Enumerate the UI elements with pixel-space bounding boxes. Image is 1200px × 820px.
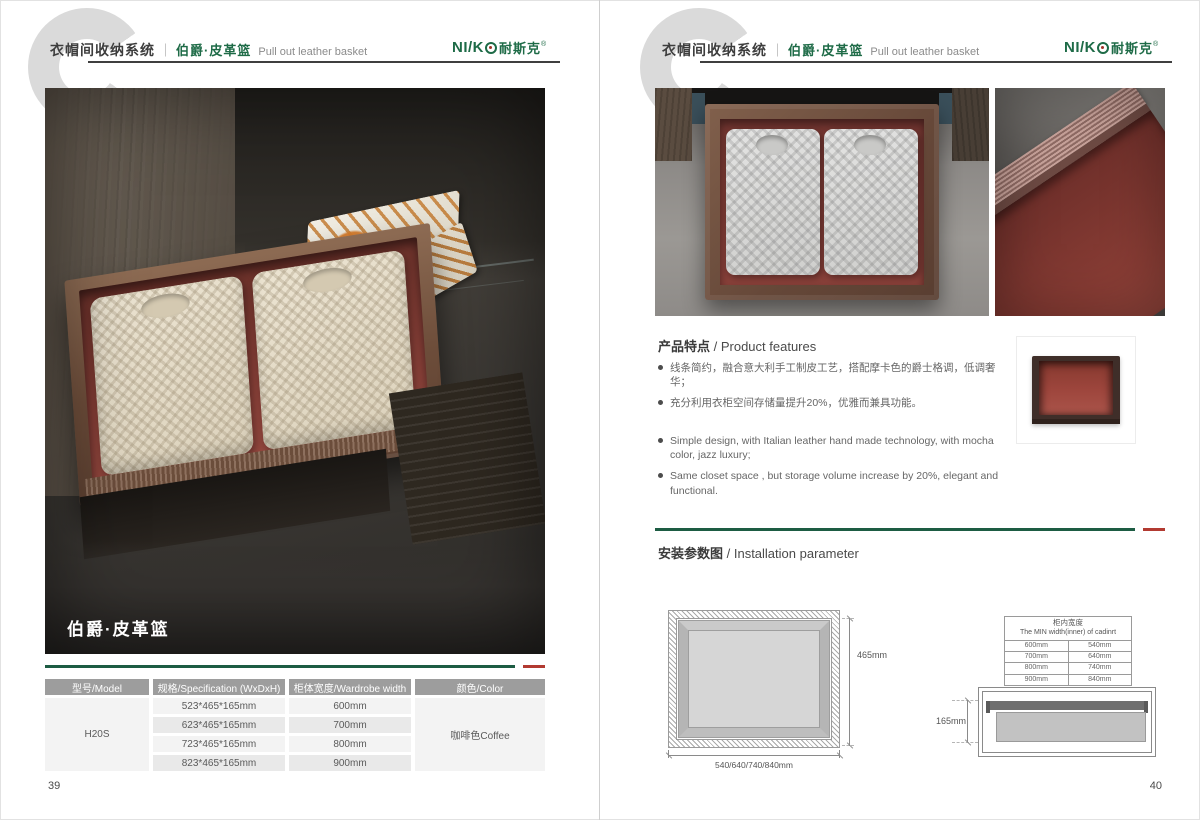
spec-cell: 623*465*165mm (153, 717, 285, 733)
bullet-icon (658, 438, 663, 443)
cabinet-width: 800mm (1005, 663, 1069, 673)
wood-panel-left (655, 88, 692, 161)
installation-title: 安装参数图 / Installation parameter (658, 543, 859, 562)
header-subtitle-cn: 伯爵·皮革篮 (788, 43, 863, 58)
nisko-logo: NI/K 耐斯克 ® (452, 38, 546, 57)
model-cell: H20S (45, 698, 149, 771)
dim-line-width (668, 755, 840, 756)
spec-cell: 823*465*165mm (153, 755, 285, 771)
sweater-left (726, 129, 820, 275)
cabinet-width: 600mm (1005, 641, 1069, 651)
header-subtitle-cn: 伯爵·皮革篮 (176, 43, 251, 58)
logo-o-icon (1097, 42, 1109, 54)
photo-vignette (995, 88, 1165, 316)
feature-text: Same closet space , but storage volume i… (670, 469, 1003, 497)
header-separator: ｜ (159, 43, 172, 58)
bullet-icon (658, 400, 663, 405)
inner-width: 540mm (1069, 641, 1132, 651)
slide-rail-left (692, 93, 705, 125)
min-width-title-en: The MIN width(inner) of cadinrt (1005, 628, 1131, 637)
spec-cell: 523*465*165mm (153, 698, 285, 714)
min-width-title-cn: 柜内宽度 (1005, 618, 1131, 628)
divider-green-bar (45, 665, 515, 668)
photo-vignette (45, 88, 545, 654)
diagram-cabinet-inner (676, 618, 832, 740)
installation-title-en: / Installation parameter (723, 546, 859, 561)
logo-cn-text: 耐斯克 (499, 38, 541, 57)
section-divider (45, 665, 545, 668)
logo-o-icon (485, 42, 497, 54)
corner-detail-photo (995, 88, 1165, 316)
cabinet-width: 900mm (1005, 675, 1069, 685)
divider-green-bar (655, 528, 1135, 531)
min-width-table: 柜内宽度 The MIN width(inner) of cadinrt 600… (1004, 616, 1132, 686)
features-title-en: / Product features (710, 339, 816, 354)
top-view-photo (655, 88, 989, 316)
header-title-cn: 衣帽间收纳系统 (662, 42, 767, 58)
logo-latin-text: NI/K (452, 39, 484, 56)
feature-item: Same closet space , but storage volume i… (658, 469, 1003, 497)
basket-inset-image (1016, 336, 1136, 444)
feature-text: Simple design, with Italian leather hand… (670, 434, 1003, 462)
color-cell: 咖啡色Coffee (415, 698, 545, 771)
header-title-cn: 衣帽间收纳系统 (50, 42, 155, 58)
spec-header-specification: 规格/Specification (WxDxH) (153, 679, 285, 695)
inner-width: 740mm (1069, 663, 1132, 673)
catalog-spread: 衣帽间收纳系统｜伯爵·皮革篮Pull out leather basket NI… (0, 0, 1200, 820)
diagram-basket (679, 621, 829, 737)
width-cell: 800mm (289, 736, 411, 752)
spec-table: 型号/Model 规格/Specification (WxDxH) 柜体宽度/W… (45, 679, 545, 771)
section-divider (655, 528, 1165, 531)
min-width-row: 800mm 740mm (1005, 663, 1131, 674)
drawer-body (996, 712, 1146, 742)
min-width-row: 700mm 640mm (1005, 652, 1131, 663)
header-rule (700, 61, 1172, 63)
feature-item: 充分利用衣柜空间存储量提升20%，优雅而兼具功能。 (658, 396, 1003, 410)
sweater-right (824, 129, 918, 275)
feature-item: Simple design, with Italian leather hand… (658, 434, 1003, 462)
page-header: 衣帽间收纳系统｜伯爵·皮革篮Pull out leather basket (662, 40, 979, 60)
spec-header-model: 型号/Model (45, 679, 149, 695)
dim-label-widths: 540/640/740/840mm (668, 760, 840, 770)
feature-text: 线条简约，融合意大利手工制皮工艺，搭配摩卡色的爵士格调，低调奢华； (670, 361, 1003, 389)
nisko-logo: NI/K 耐斯克 ® (1064, 38, 1158, 57)
features-bullets-cn: 线条简约，融合意大利手工制皮工艺，搭配摩卡色的爵士格调，低调奢华； 充分利用衣柜… (658, 361, 1003, 418)
min-width-row: 900mm 840mm (1005, 675, 1131, 685)
width-cell: 600mm (289, 698, 411, 714)
spec-cell: 723*465*165mm (153, 736, 285, 752)
slide-rail-right (939, 93, 952, 125)
inset-basket-lip (1032, 419, 1120, 424)
divider-red-bar (1143, 528, 1165, 531)
features-title: 产品特点 / Product features (658, 336, 816, 355)
width-cell: 700mm (289, 717, 411, 733)
photo-caption: 伯爵·皮革篮 (67, 615, 170, 640)
inset-basket-frame (1032, 356, 1120, 424)
features-title-cn: 产品特点 (658, 339, 710, 354)
cabinet-width: 700mm (1005, 652, 1069, 662)
leather-interior (720, 119, 924, 285)
top-view-diagram (668, 610, 840, 748)
divider-red-bar (523, 665, 545, 668)
logo-o-dot (1101, 46, 1104, 49)
page-header: 衣帽间收纳系统｜伯爵·皮革篮Pull out leather basket (50, 40, 367, 60)
installation-title-cn: 安装参数图 (658, 546, 723, 561)
extension-line (952, 742, 978, 743)
inner-width: 840mm (1069, 675, 1132, 685)
bullet-icon (658, 365, 663, 370)
min-width-table-header: 柜内宽度 The MIN width(inner) of cadinrt (1005, 617, 1131, 641)
dim-label-465: 465mm (857, 650, 887, 660)
page-number-39: 39 (48, 780, 60, 792)
header-rule (88, 61, 560, 63)
header-separator: ｜ (771, 43, 784, 58)
feature-item: 线条简约，融合意大利手工制皮工艺，搭配摩卡色的爵士格调，低调奢华； (658, 361, 1003, 389)
wood-panel-right (952, 88, 989, 161)
logo-cn-text: 耐斯克 (1111, 38, 1153, 57)
header-subtitle-en: Pull out leather basket (870, 46, 979, 58)
width-cell: 900mm (289, 755, 411, 771)
dim-line-height (849, 618, 850, 746)
features-bullets-en: Simple design, with Italian leather hand… (658, 434, 1003, 505)
spec-header-wardrobe-width: 柜体宽度/Wardrobe width (289, 679, 411, 695)
registered-mark: ® (1153, 41, 1158, 48)
dim-label-165: 165mm (936, 716, 966, 726)
bullet-icon (658, 473, 663, 478)
page-number-40: 40 (1138, 780, 1162, 792)
page-gutter-line (599, 0, 600, 820)
min-width-row: 600mm 540mm (1005, 641, 1131, 652)
side-view-diagram (978, 687, 1156, 757)
drawer-rail (986, 701, 1148, 710)
extension-line (952, 700, 978, 701)
header-subtitle-en: Pull out leather basket (258, 46, 367, 58)
spec-header-color: 颜色/Color (415, 679, 545, 695)
basket-frame (705, 104, 939, 300)
inset-basket-interior (1039, 361, 1113, 415)
main-product-photo: 伯爵·皮革篮 (45, 88, 545, 654)
inner-width: 640mm (1069, 652, 1132, 662)
logo-o-dot (489, 46, 492, 49)
logo-latin-text: NI/K (1064, 39, 1096, 56)
registered-mark: ® (541, 41, 546, 48)
dim-line-drawer-height (967, 700, 968, 742)
feature-text: 充分利用衣柜空间存储量提升20%，优雅而兼具功能。 (670, 396, 922, 410)
